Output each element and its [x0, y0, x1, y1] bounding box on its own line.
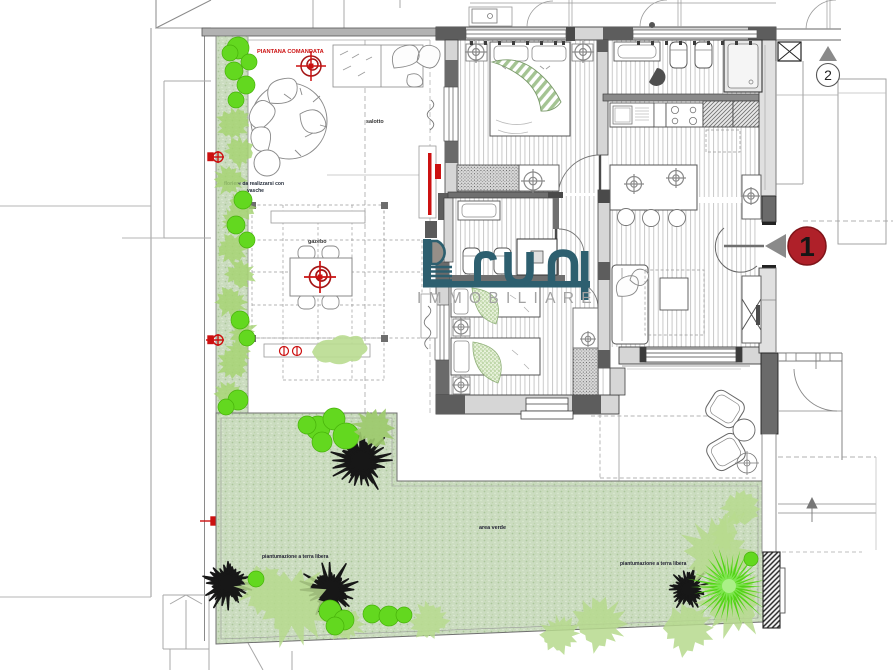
svg-text:1: 1: [799, 231, 815, 262]
svg-text:PIANTANA COMANDATA: PIANTANA COMANDATA: [257, 49, 324, 55]
svg-text:salotto: salotto: [366, 119, 384, 125]
svg-text:gazebo: gazebo: [308, 239, 327, 245]
svg-text:2: 2: [824, 67, 832, 83]
svg-text:area verde: area verde: [479, 525, 506, 531]
svg-text:vasche: vasche: [247, 188, 264, 194]
svg-text:piantumazione a terra libera: piantumazione a terra libera: [262, 554, 329, 560]
svg-text:IMMOBILIARE: IMMOBILIARE: [417, 290, 599, 307]
svg-text:piantumazione a terra libera: piantumazione a terra libera: [620, 561, 687, 567]
